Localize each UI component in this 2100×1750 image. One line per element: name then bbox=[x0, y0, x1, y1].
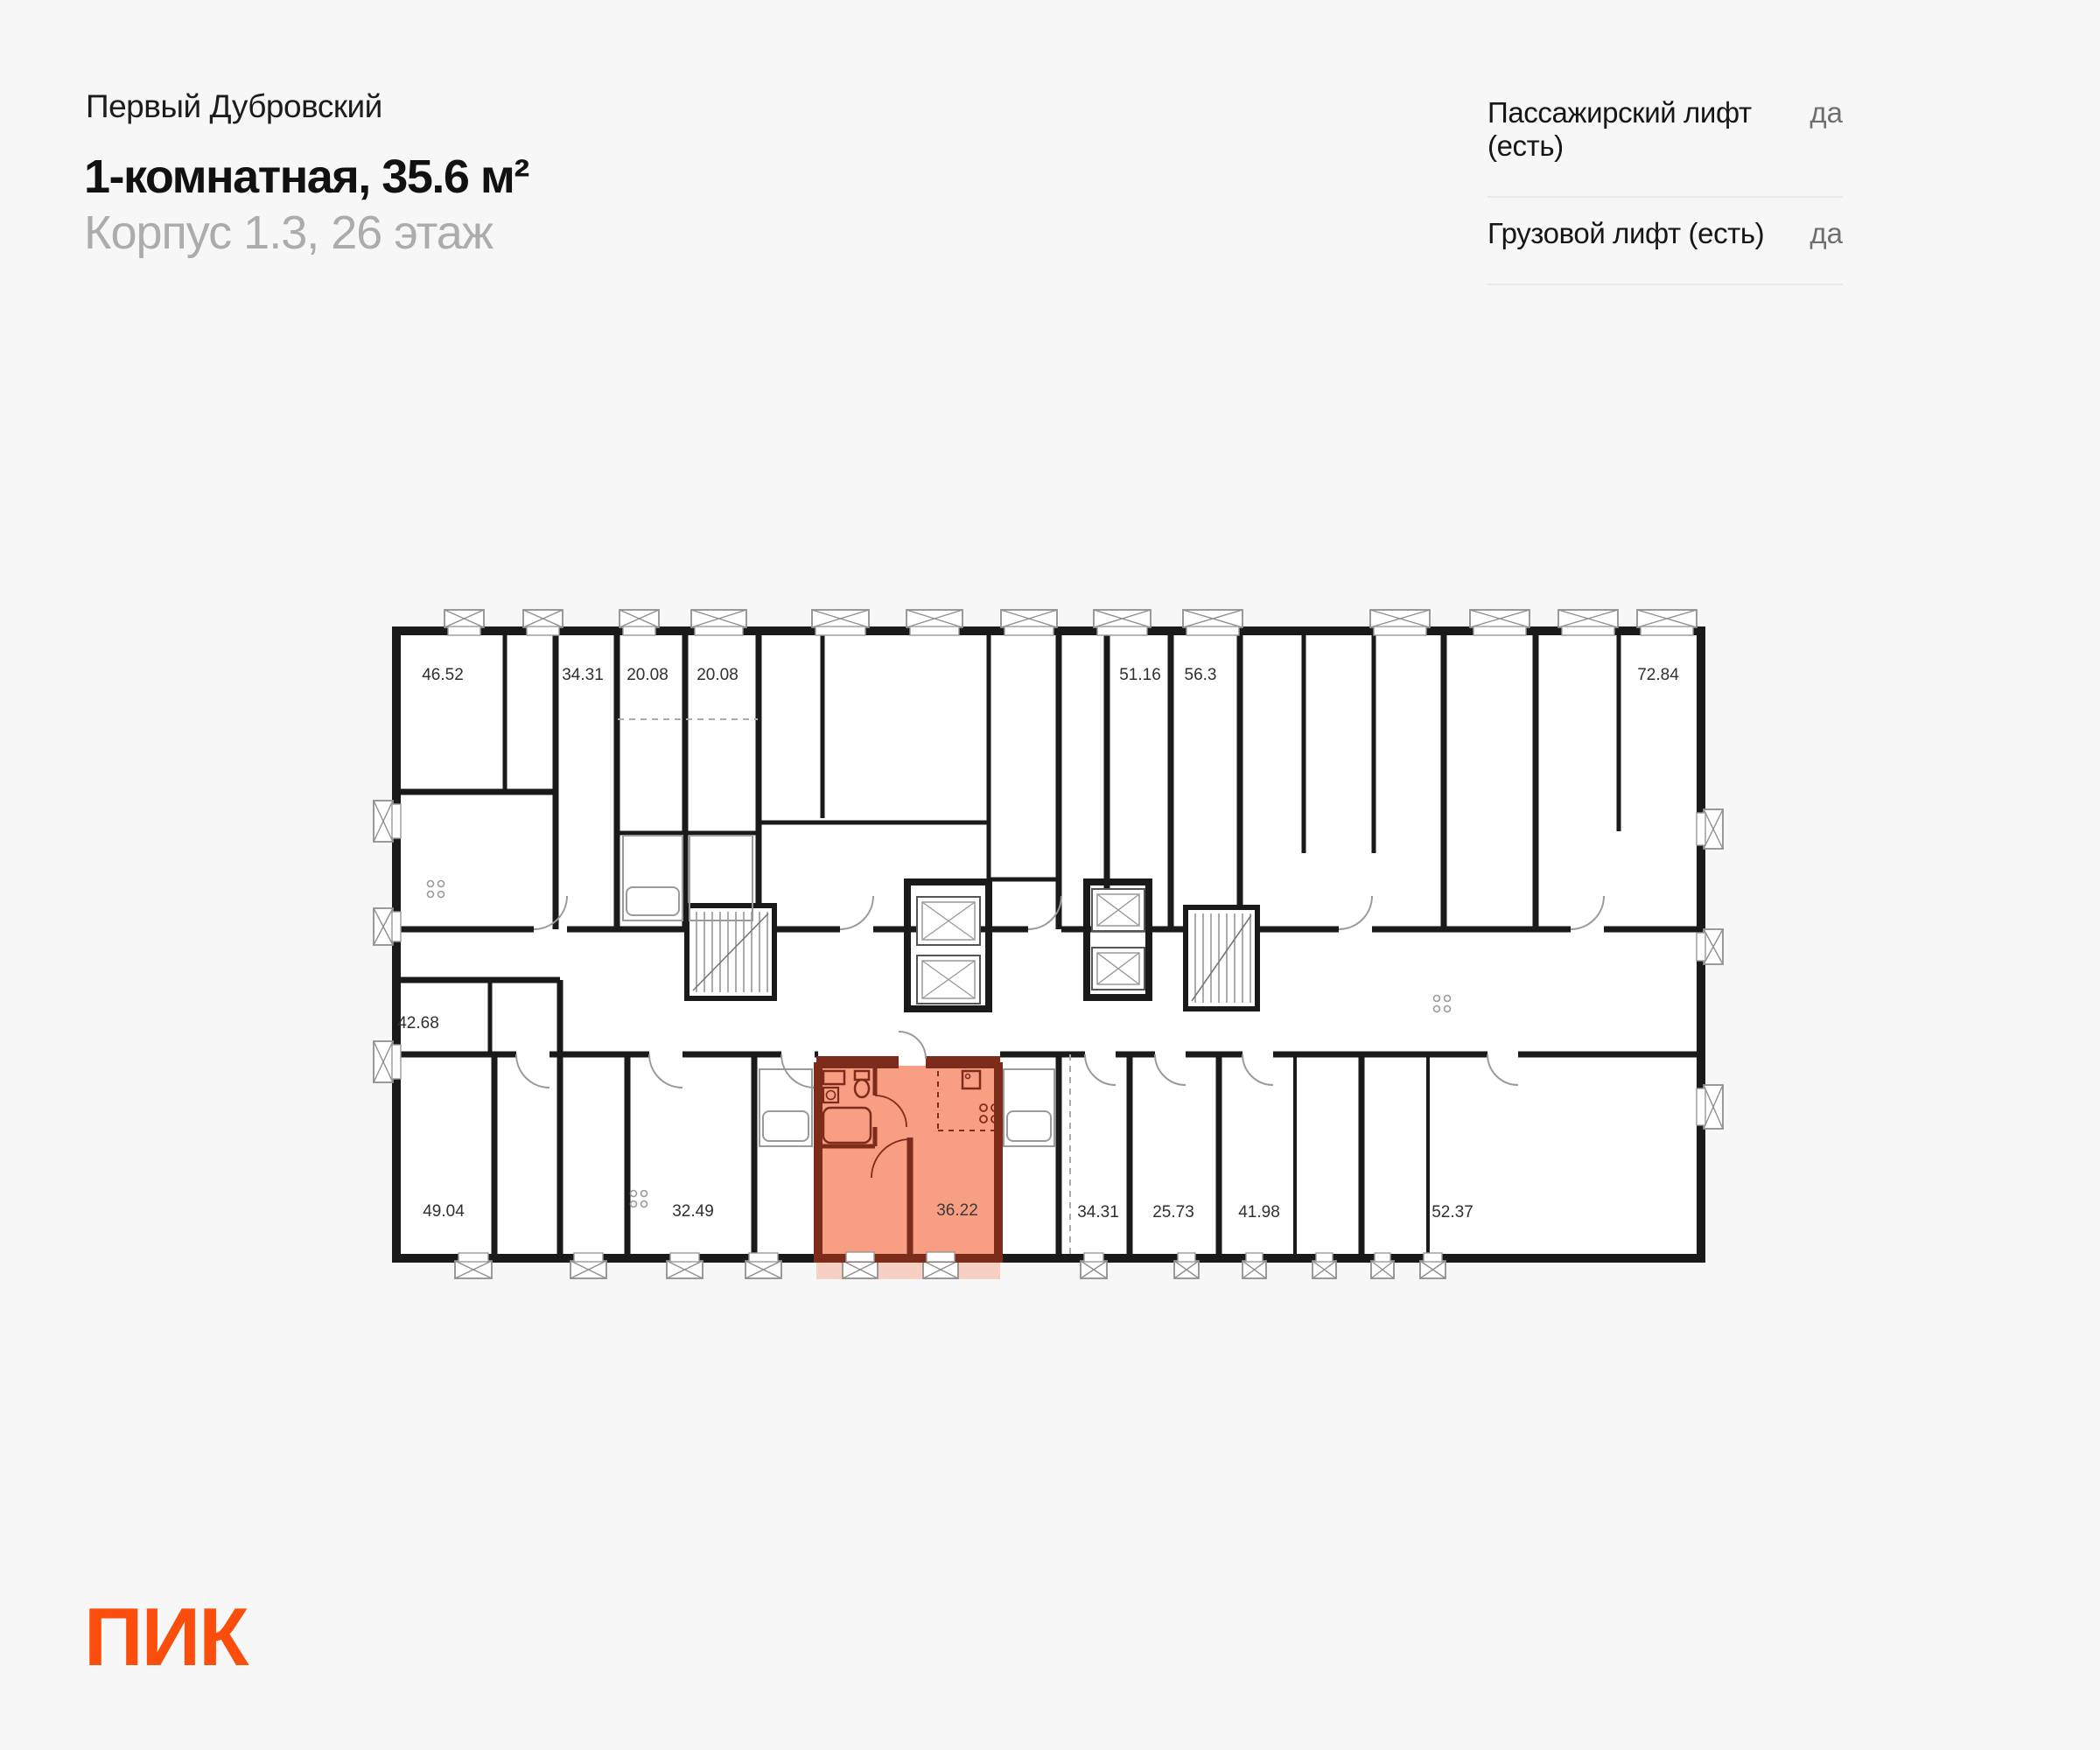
area-label: 42.68 bbox=[397, 1014, 439, 1032]
pik-logo: ПИК bbox=[84, 1596, 248, 1678]
area-label: 32.49 bbox=[672, 1202, 714, 1221]
area-label: 34.31 bbox=[562, 666, 604, 684]
window-strip bbox=[1697, 933, 1705, 961]
window-strip bbox=[670, 1253, 699, 1262]
building-outline bbox=[396, 631, 1701, 1258]
window-strip bbox=[392, 1045, 401, 1079]
window-strip bbox=[623, 626, 655, 635]
highlighted-apartment[interactable] bbox=[816, 1032, 1000, 1279]
area-label: 52.37 bbox=[1431, 1203, 1473, 1221]
area-label: 20.08 bbox=[696, 666, 738, 684]
window-strip bbox=[910, 626, 959, 635]
window-strip bbox=[1562, 626, 1614, 635]
area-label: 34.31 bbox=[1077, 1203, 1119, 1221]
apartment-plan-page: Первый Дубровский 1-комнатная, 35.6 м² К… bbox=[0, 0, 2100, 1750]
window-strip bbox=[1641, 626, 1693, 635]
area-label: 51.16 bbox=[1119, 666, 1161, 684]
window-strip bbox=[574, 1253, 603, 1262]
window-strip bbox=[1374, 626, 1426, 635]
window-strip bbox=[458, 1253, 488, 1262]
window-strip bbox=[1697, 1088, 1705, 1125]
window-strip bbox=[695, 626, 743, 635]
floor-plan: 46.52 34.31 20.08 20.08 51.16 56.3 72.84… bbox=[0, 0, 2100, 1750]
area-label: 46.52 bbox=[422, 666, 464, 684]
window-strip bbox=[1186, 626, 1239, 635]
window-strip bbox=[815, 626, 865, 635]
area-label: 25.73 bbox=[1152, 1203, 1194, 1221]
area-label: 56.3 bbox=[1185, 666, 1217, 684]
window-strip bbox=[448, 626, 480, 635]
window-strip bbox=[1697, 813, 1705, 845]
window-strip bbox=[1316, 1253, 1333, 1262]
window-strip bbox=[846, 1252, 874, 1262]
walls-layer bbox=[396, 631, 1701, 1258]
highlighted-area-label: 36.22 bbox=[936, 1201, 978, 1220]
area-label: 49.04 bbox=[423, 1202, 465, 1221]
window-strip bbox=[392, 804, 401, 838]
window-strip bbox=[1084, 1253, 1103, 1262]
area-label: 41.98 bbox=[1238, 1203, 1280, 1221]
window-strip bbox=[927, 1252, 955, 1262]
window-strip bbox=[1004, 626, 1053, 635]
window-strip bbox=[749, 1253, 778, 1262]
area-label: 20.08 bbox=[626, 666, 668, 684]
window-strip bbox=[1424, 1253, 1442, 1262]
window-strip bbox=[527, 626, 559, 635]
window-strip bbox=[1375, 1253, 1390, 1262]
area-label: 72.84 bbox=[1637, 666, 1679, 684]
window-strip bbox=[1178, 1253, 1195, 1262]
window-strip bbox=[1473, 626, 1526, 635]
window-strip bbox=[1097, 626, 1147, 635]
window-strip bbox=[392, 912, 401, 941]
window-strip bbox=[1246, 1253, 1263, 1262]
